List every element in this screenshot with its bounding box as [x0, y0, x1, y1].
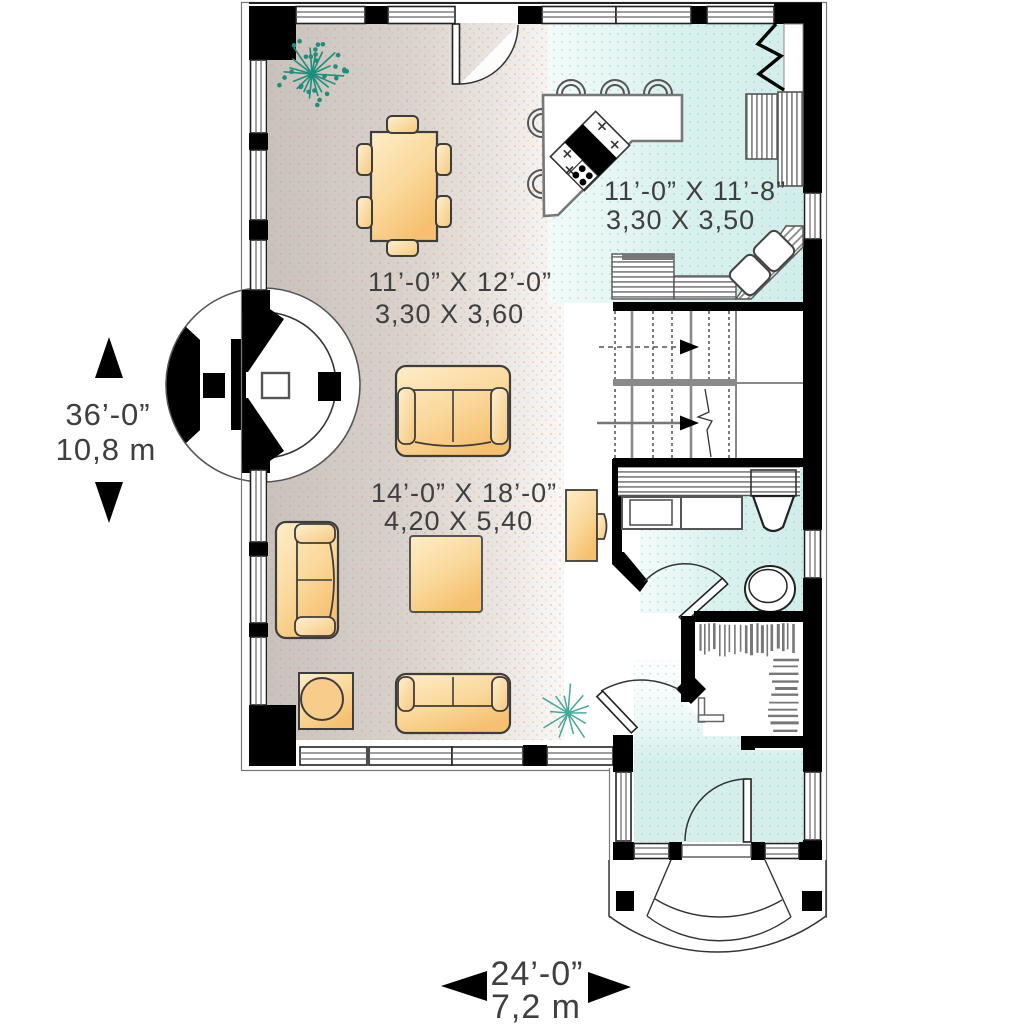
svg-text:3,30 X 3,60: 3,30 X 3,60: [375, 299, 524, 329]
svg-text:10,8 m: 10,8 m: [56, 432, 157, 467]
svg-text:14’-0” X 18’-0”: 14’-0” X 18’-0”: [371, 478, 557, 508]
svg-text:7,2 m: 7,2 m: [491, 988, 581, 1024]
svg-text:36’-0”: 36’-0”: [65, 397, 150, 432]
svg-text:3,30 X 3,50: 3,30 X 3,50: [606, 205, 755, 235]
svg-text:4,20 X 5,40: 4,20 X 5,40: [384, 506, 533, 536]
svg-text:11’-0” X 11’-8”: 11’-0” X 11’-8”: [604, 176, 786, 206]
svg-text:11’-0” X 12’-0”: 11’-0” X 12’-0”: [368, 267, 552, 297]
